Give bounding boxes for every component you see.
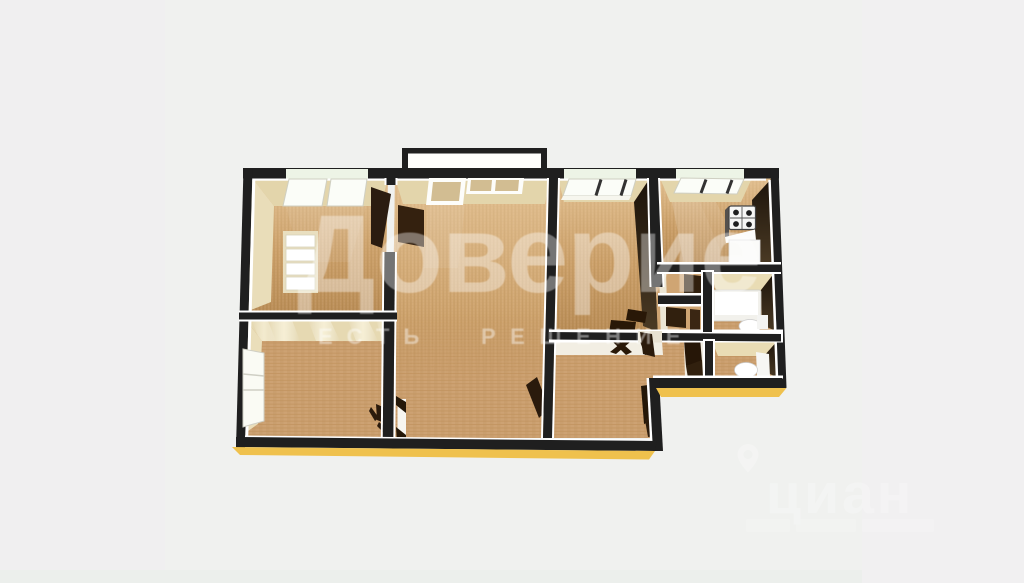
svg-text:ЕСТЬ: ЕСТЬ: [318, 324, 433, 349]
svg-text:циан: циан: [766, 462, 914, 526]
svg-text:РЕШЕНИЕ: РЕШЕНИЕ: [481, 324, 695, 349]
svg-text:Доверие: Доверие: [297, 193, 760, 316]
